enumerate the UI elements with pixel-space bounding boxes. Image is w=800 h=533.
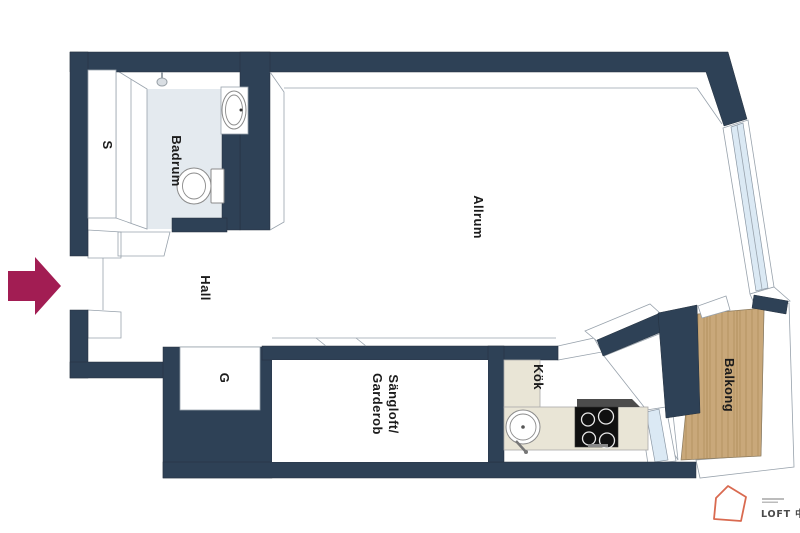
- bottom-wall: [163, 462, 696, 478]
- stove-back-edge: [577, 399, 640, 407]
- entrance-jamb-upper: [88, 230, 121, 258]
- room-label-sangloft-line2: Garderob: [370, 373, 385, 435]
- floorplan-canvas: S Badrum Hall Allrum G Sängloft/ Gardero…: [0, 0, 800, 533]
- room-label-s: S: [100, 140, 115, 149]
- floorplan-svg: S Badrum Hall Allrum G Sängloft/ Gardero…: [0, 0, 800, 533]
- bathroom-divider-wall: [240, 52, 270, 230]
- room-label-hall: Hall: [198, 275, 213, 300]
- bathroom-right-wall: [222, 134, 240, 230]
- room-label-allrum: Allrum: [471, 195, 486, 239]
- bathroom-door-face: [118, 232, 170, 256]
- house-outline-icon: [714, 486, 746, 521]
- entrance-jamb-lower: [88, 310, 121, 338]
- room-label-sangloft-line1: Sängloft/: [386, 374, 401, 433]
- room-label-badrum: Badrum: [169, 135, 184, 187]
- stove-icon: [575, 407, 618, 447]
- logo-tagline-bar: [762, 502, 778, 504]
- logo-tagline-bar: [762, 498, 784, 500]
- bathroom-wall-face: [116, 70, 147, 229]
- entry-arrow-icon: [8, 257, 61, 315]
- toilet-tank: [211, 169, 224, 203]
- kitchen-wall-junction-face: [558, 338, 602, 360]
- room-label-balkong: Balkong: [722, 358, 737, 412]
- stove-handle: [588, 444, 608, 447]
- logo: LOFT 中国: [714, 486, 800, 521]
- left-wall-upper: [70, 52, 88, 256]
- kitchen-left-wall: [488, 346, 504, 462]
- bathroom-bottom-wall: [172, 218, 227, 232]
- logo-wordmark: LOFT 中国: [761, 508, 800, 520]
- room-label-kok: Kök: [531, 364, 546, 390]
- room-label-g: G: [217, 373, 232, 384]
- sleeping-loft-top-wall: [262, 346, 558, 360]
